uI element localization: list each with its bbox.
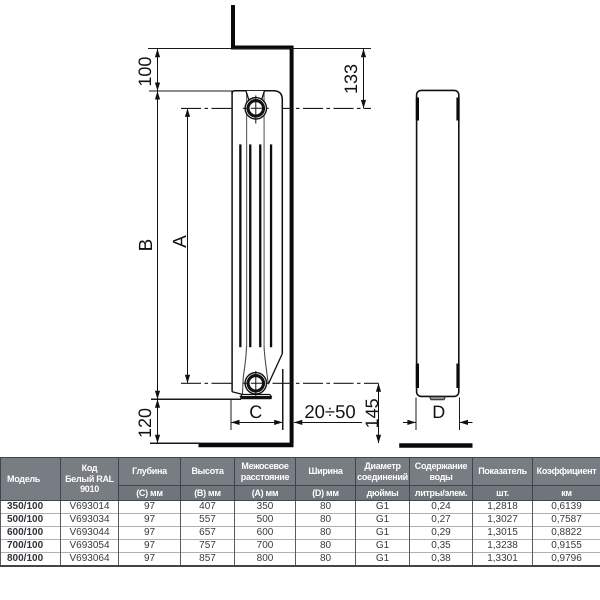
svg-text:120: 120 xyxy=(135,408,155,438)
svg-text:B: B xyxy=(136,239,157,252)
svg-text:C: C xyxy=(249,402,262,422)
svg-text:100: 100 xyxy=(135,57,155,87)
svg-text:20÷50: 20÷50 xyxy=(304,401,355,422)
svg-text:A: A xyxy=(170,235,191,248)
svg-text:145: 145 xyxy=(362,398,382,428)
svg-text:133: 133 xyxy=(341,64,361,94)
svg-text:D: D xyxy=(432,402,445,422)
